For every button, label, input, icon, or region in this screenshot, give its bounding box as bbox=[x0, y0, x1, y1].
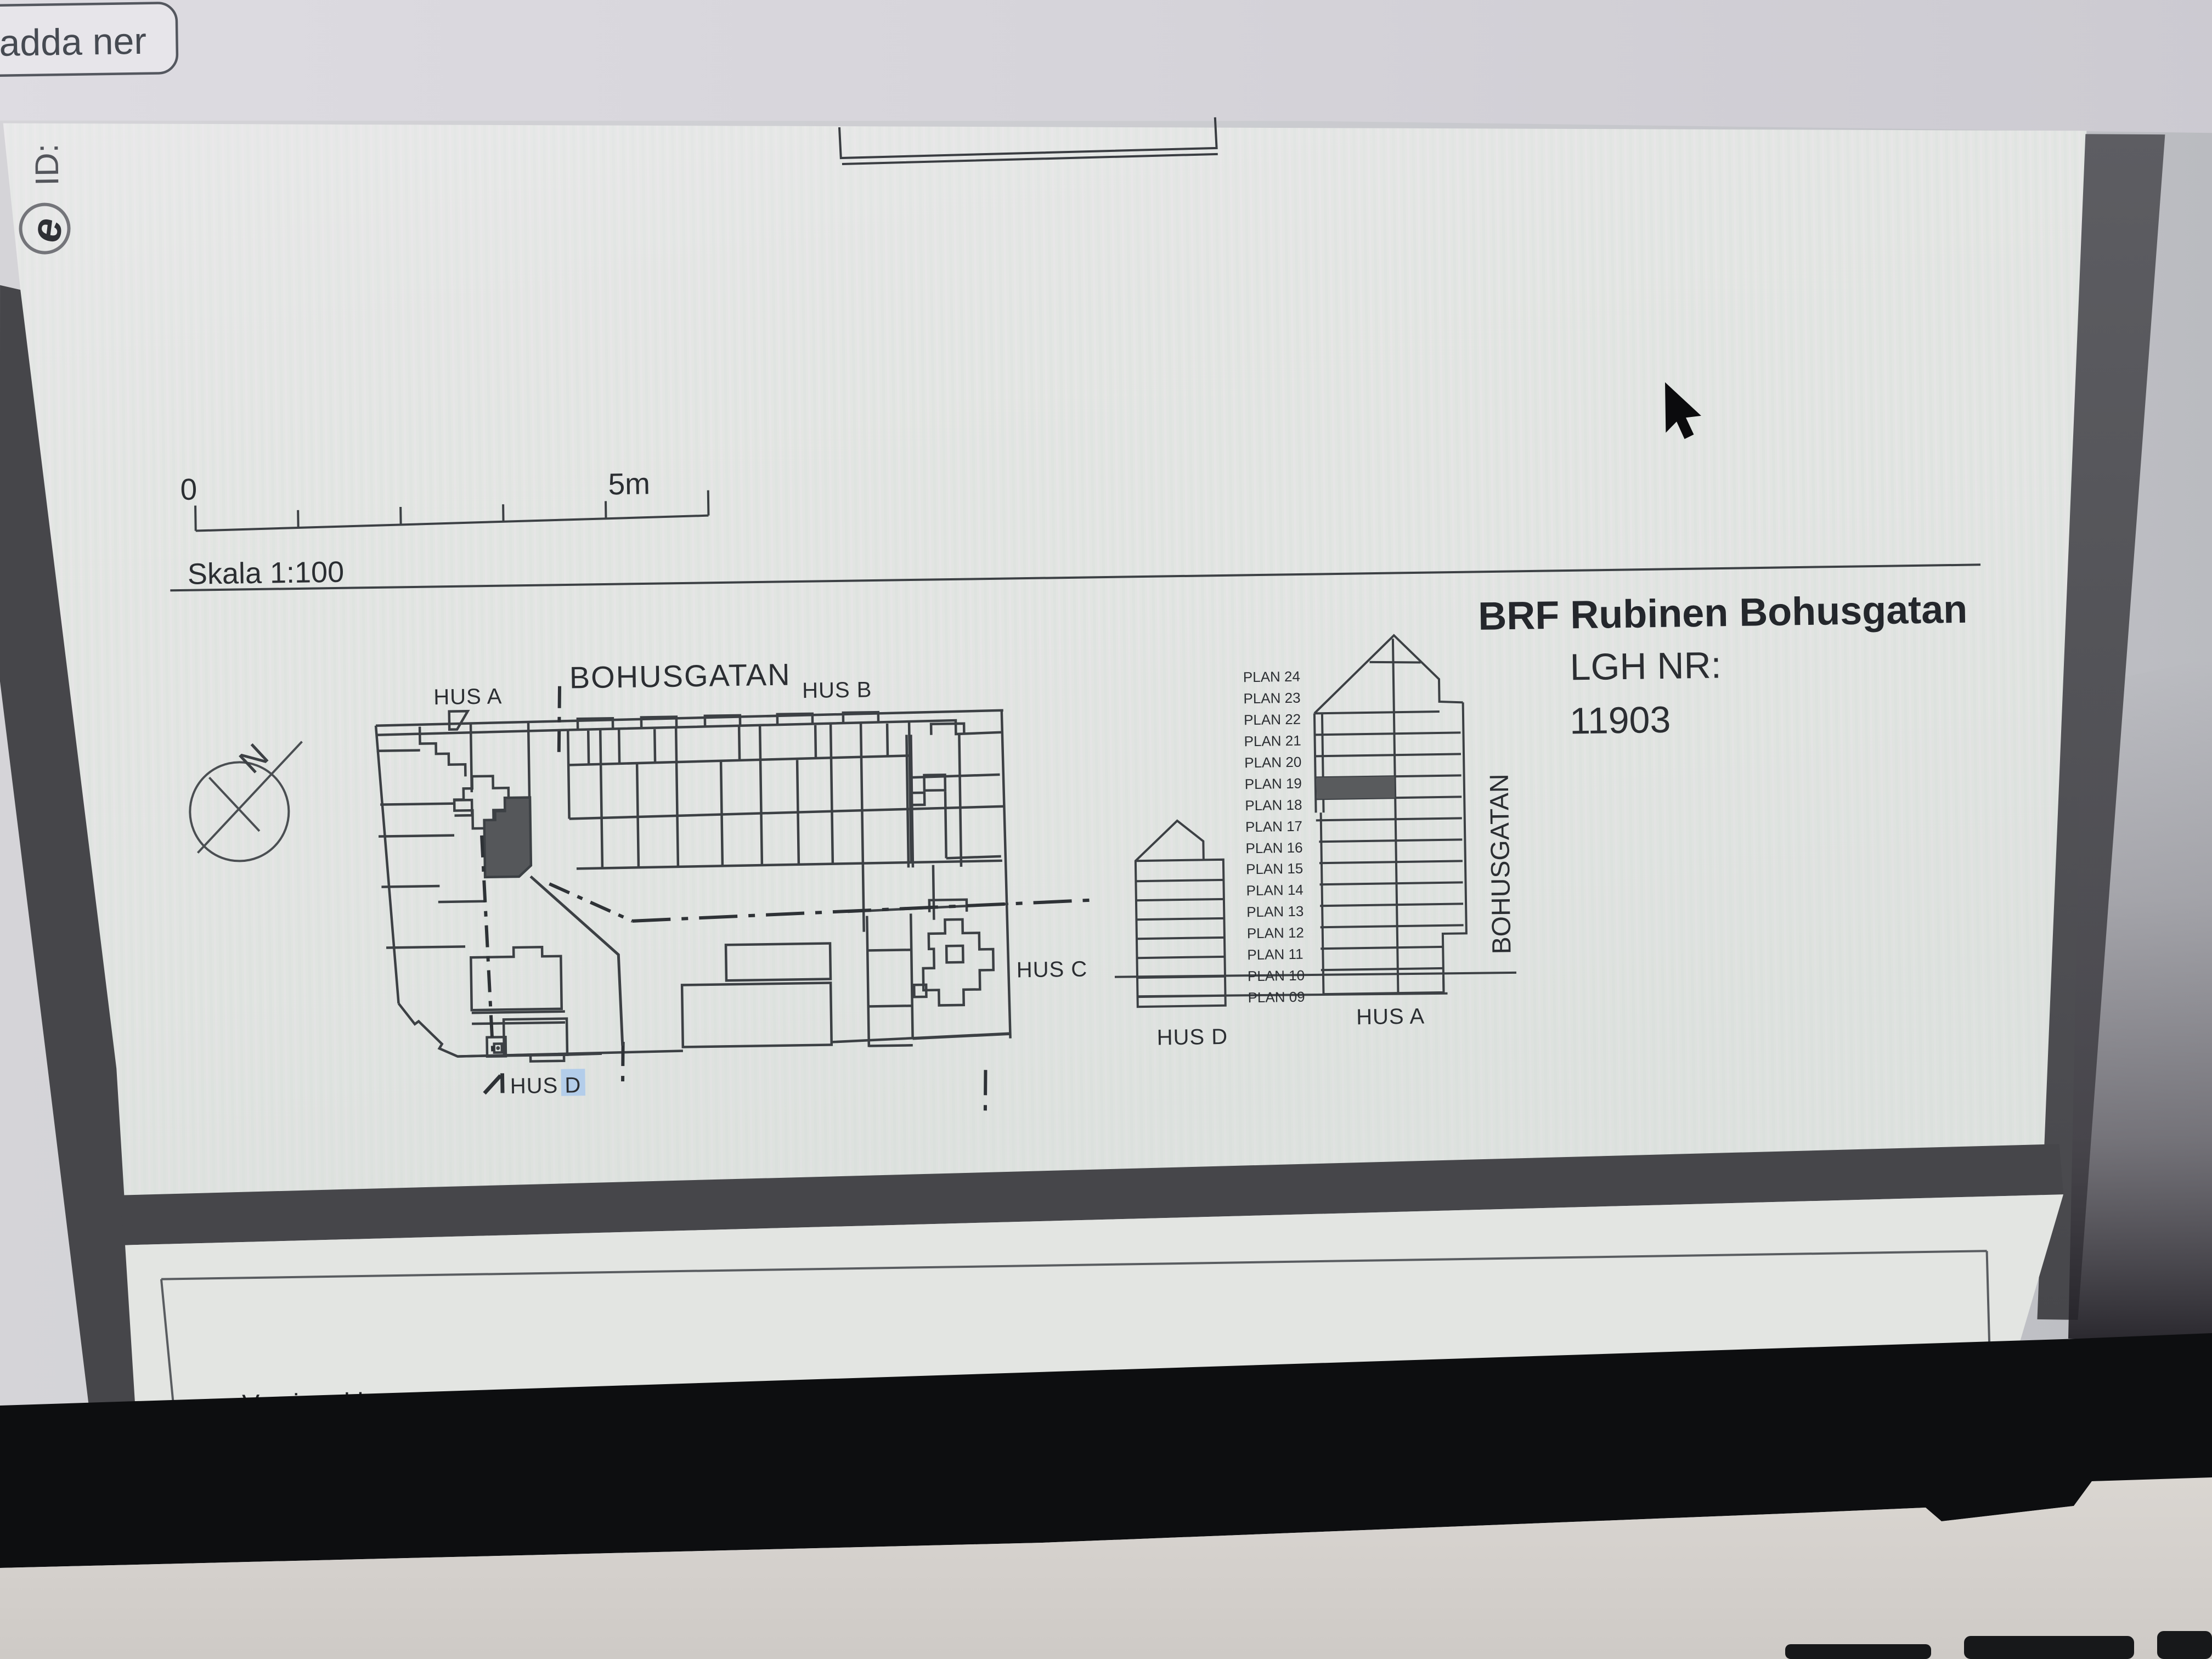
svg-text:PLAN 12: PLAN 12 bbox=[1247, 924, 1305, 942]
svg-text:PLAN 24: PLAN 24 bbox=[1243, 668, 1301, 686]
svg-text:PLAN 14: PLAN 14 bbox=[1246, 882, 1304, 899]
svg-text:PLAN 21: PLAN 21 bbox=[1244, 732, 1301, 750]
svg-text:PLAN 15: PLAN 15 bbox=[1246, 860, 1304, 878]
svg-text:PLAN 18: PLAN 18 bbox=[1245, 797, 1302, 814]
svg-text:BOHUSGATAN: BOHUSGATAN bbox=[1485, 774, 1517, 955]
svg-text:PLAN 10: PLAN 10 bbox=[1248, 967, 1305, 985]
svg-text:PLAN 11: PLAN 11 bbox=[1247, 946, 1304, 963]
svg-text:PLAN 19: PLAN 19 bbox=[1245, 775, 1302, 793]
svg-text:adda ner: adda ner bbox=[0, 20, 147, 64]
svg-text:LGH NR:: LGH NR: bbox=[1570, 644, 1722, 688]
svg-text:PLAN 17: PLAN 17 bbox=[1245, 818, 1303, 836]
svg-text:PLAN 20: PLAN 20 bbox=[1244, 754, 1302, 771]
svg-text:HUS D: HUS D bbox=[510, 1073, 581, 1098]
svg-text:0: 0 bbox=[180, 472, 198, 506]
svg-text:PLAN 22: PLAN 22 bbox=[1244, 711, 1301, 729]
svg-text:Skala 1:100: Skala 1:100 bbox=[187, 556, 344, 591]
svg-text:PLAN 23: PLAN 23 bbox=[1243, 690, 1301, 707]
svg-text:5m: 5m bbox=[608, 466, 650, 501]
svg-text:PLAN 09: PLAN 09 bbox=[1248, 989, 1305, 1006]
svg-text:HUS A: HUS A bbox=[1356, 1004, 1425, 1029]
svg-text:PLAN 13: PLAN 13 bbox=[1246, 903, 1304, 921]
svg-text:PLAN 16: PLAN 16 bbox=[1245, 839, 1303, 857]
svg-text:HUS C: HUS C bbox=[1016, 957, 1087, 983]
svg-text:HUS A: HUS A bbox=[433, 684, 503, 709]
svg-text:HUS D: HUS D bbox=[1156, 1025, 1228, 1050]
svg-text:HUS B: HUS B bbox=[802, 678, 872, 703]
svg-text:BRF Rubinen Bohusgatan: BRF Rubinen Bohusgatan bbox=[1478, 588, 1968, 639]
svg-text:ID:: ID: bbox=[28, 143, 65, 186]
svg-text:11903: 11903 bbox=[1570, 699, 1671, 742]
svg-text:BOHUSGATAN: BOHUSGATAN bbox=[569, 657, 791, 695]
